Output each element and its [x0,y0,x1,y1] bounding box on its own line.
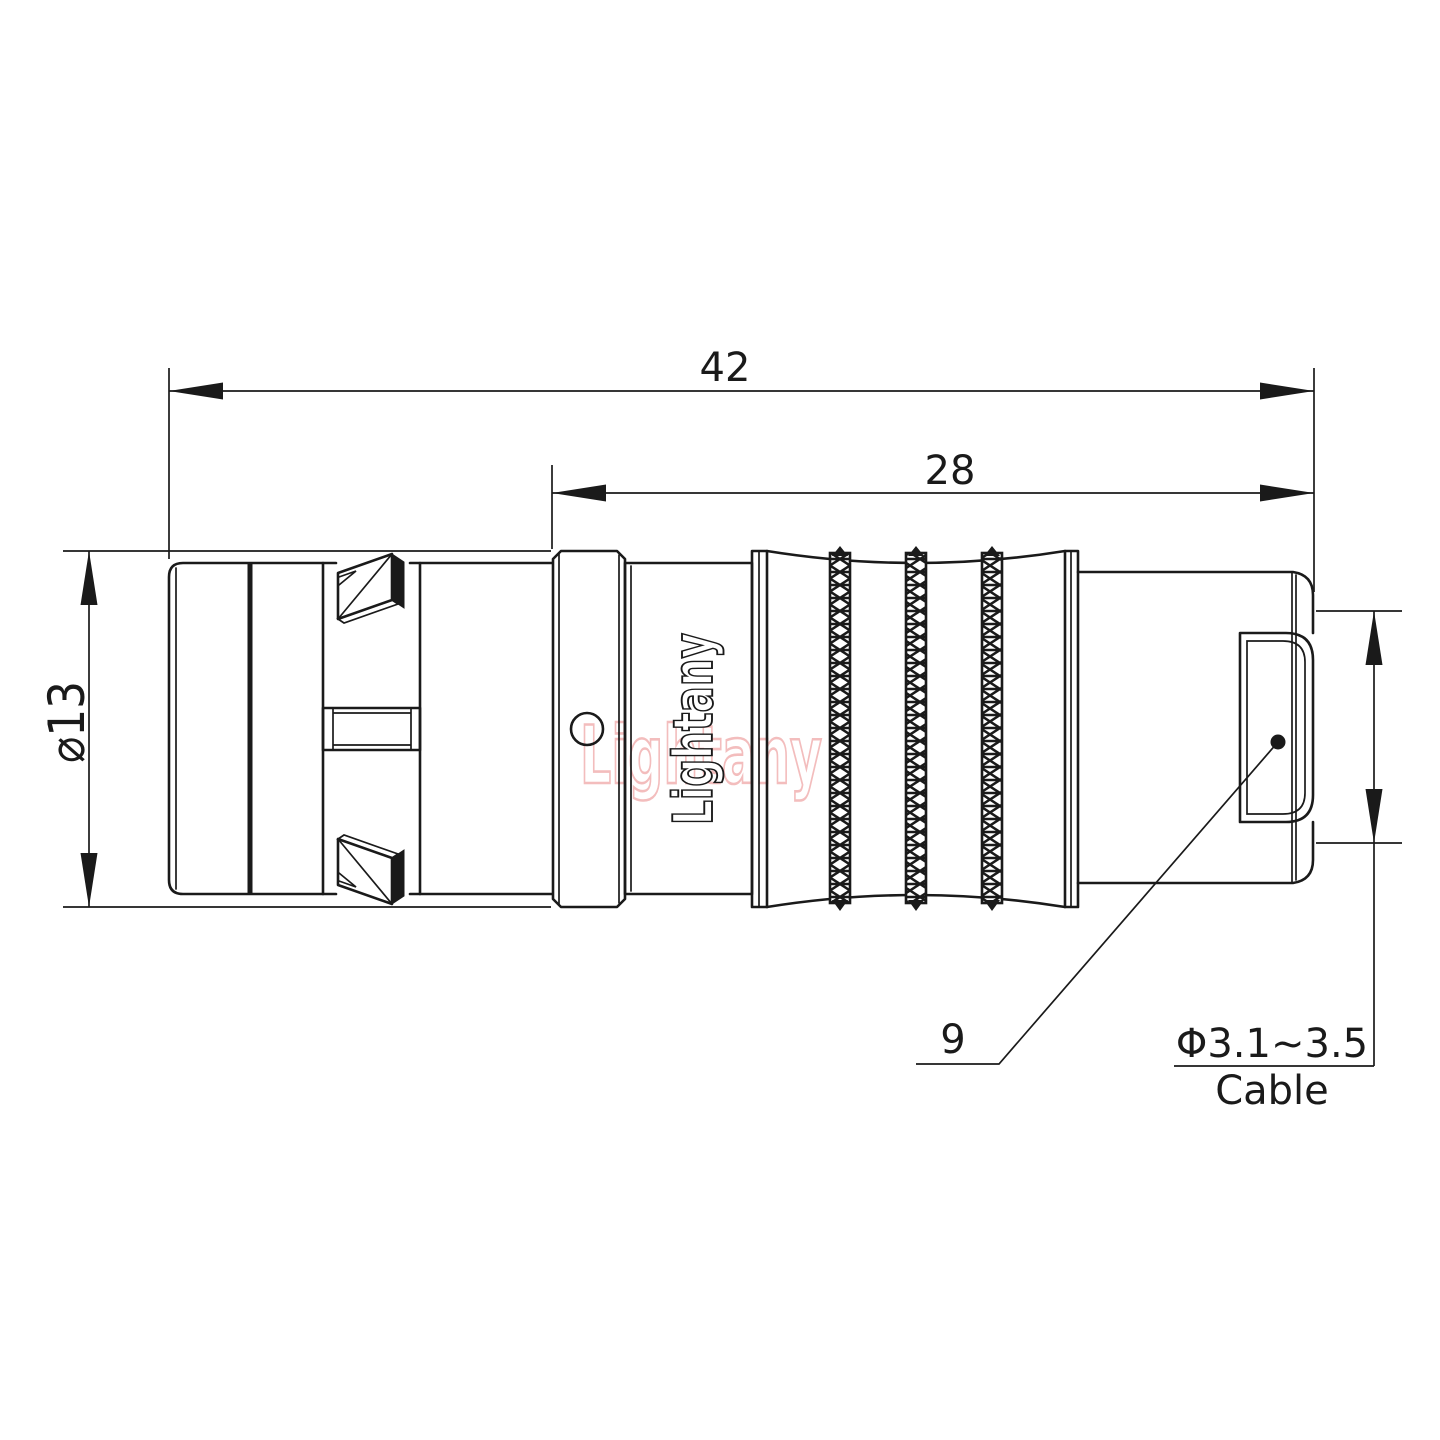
cable-boot [1240,633,1313,822]
knurl-band [982,546,1002,911]
dim-diameter: ⌀13 [38,551,551,907]
engraved-logo-text: Lightany [662,633,725,825]
dim-label-cable-range: Φ3.1~3.5 [1176,1021,1368,1067]
dim-label-cable-word: Cable [1215,1068,1329,1114]
connector-drawing: Lightany [0,0,1440,1440]
dim-label-28: 28 [925,448,976,494]
dim-label-9: 9 [940,1017,965,1063]
dim-label-13: ⌀13 [38,681,96,763]
latch-window [323,708,420,750]
front-shell [169,554,552,904]
technical-drawing-page: Lightany [0,0,1440,1440]
knurl-band [830,546,850,911]
latch-clip-bottom [338,835,404,904]
dim-label-42: 42 [700,345,751,391]
knurl-band [906,546,926,911]
dim-overall-length: 42 [169,345,1314,592]
leader-9: 9 [916,742,1278,1064]
latch-clip-top [338,554,404,623]
dim-rear-length: 28 [552,448,1314,549]
end-cap-face [1292,572,1296,883]
dim-cable: Φ3.1~3.5 Cable [1174,611,1402,1114]
